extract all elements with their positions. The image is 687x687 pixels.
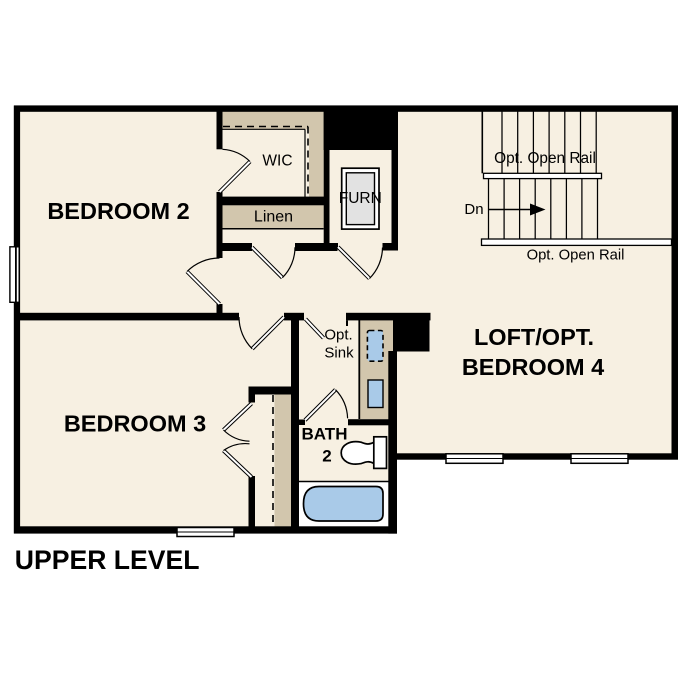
svg-text:Sink: Sink bbox=[324, 345, 354, 362]
svg-text:FURN: FURN bbox=[339, 190, 382, 207]
svg-text:Opt.: Opt. bbox=[324, 326, 352, 343]
svg-text:BATH: BATH bbox=[302, 425, 348, 444]
svg-text:Dn: Dn bbox=[464, 201, 483, 218]
svg-text:BEDROOM 3: BEDROOM 3 bbox=[64, 411, 206, 437]
svg-text:Linen: Linen bbox=[254, 209, 293, 226]
svg-text:BEDROOM 2: BEDROOM 2 bbox=[47, 198, 189, 224]
svg-text:Opt. Open Rail: Opt. Open Rail bbox=[494, 150, 596, 167]
svg-text:WIC: WIC bbox=[262, 152, 292, 169]
svg-text:2: 2 bbox=[322, 447, 331, 466]
svg-text:LOFT/OPT.: LOFT/OPT. bbox=[474, 324, 594, 350]
svg-text:Opt. Open Rail: Opt. Open Rail bbox=[527, 248, 625, 264]
svg-text:BEDROOM 4: BEDROOM 4 bbox=[462, 354, 604, 380]
svg-text:UPPER LEVEL: UPPER LEVEL bbox=[15, 545, 200, 575]
